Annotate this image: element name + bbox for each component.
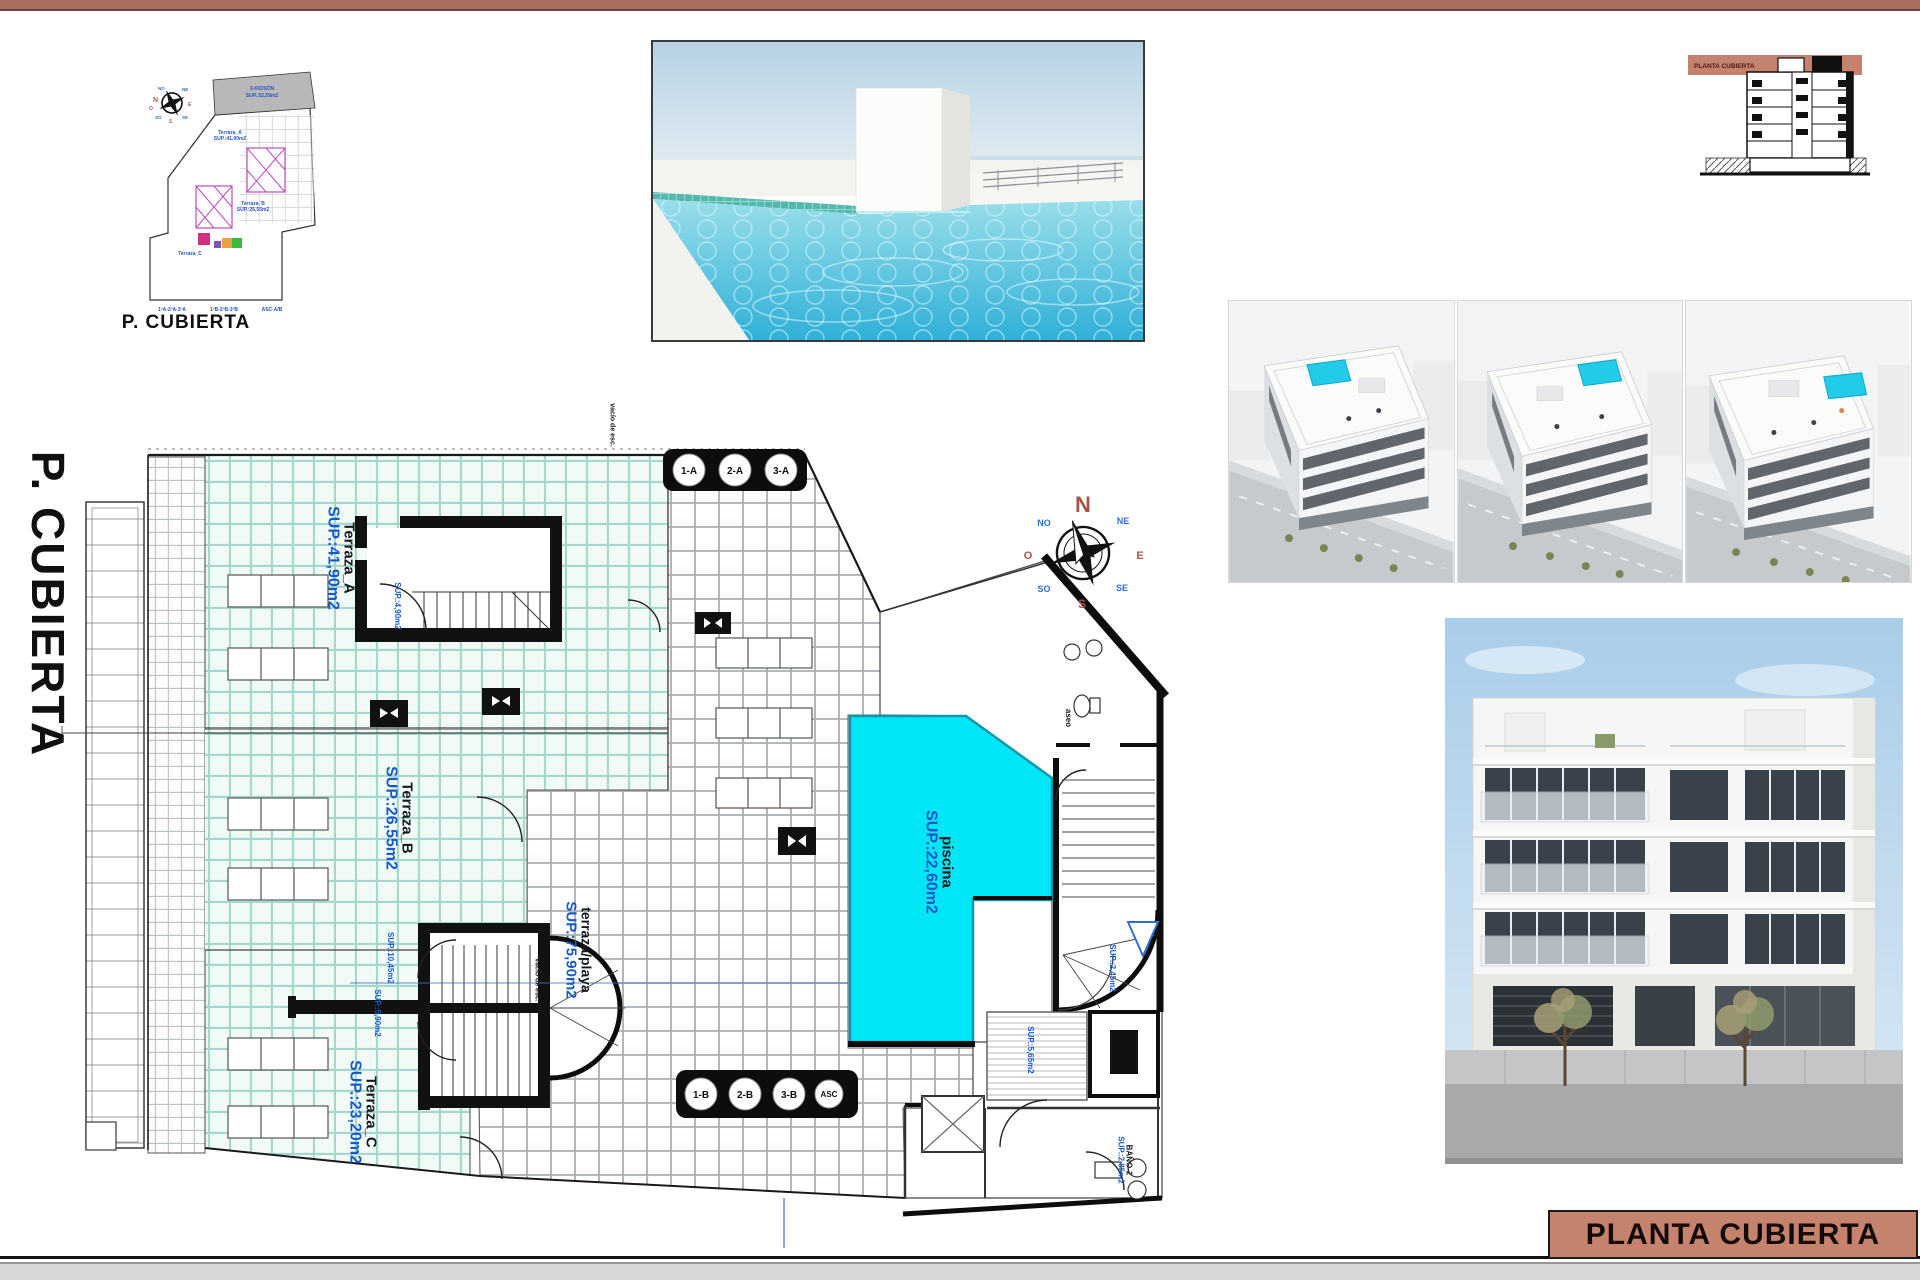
terraza-b-area bbox=[205, 730, 668, 790]
stair-right-area-label: SUP.:2,45m2 bbox=[1108, 944, 1116, 991]
small-area-label: SUP.:10,45m2 bbox=[386, 932, 394, 984]
stair-b1-area-label: SUP.:10,45m2 bbox=[386, 932, 394, 984]
compass-o: O bbox=[1024, 550, 1033, 562]
void-label-2: vacío de esc. bbox=[608, 403, 615, 447]
room-name: piscina bbox=[939, 836, 955, 888]
room-label-terraza-a: Terraza_A SUP.:41,90m2 bbox=[324, 506, 357, 610]
stair-a bbox=[355, 516, 562, 642]
void-text: vacío de esc. bbox=[608, 403, 615, 447]
room-name: BAÑO-2 bbox=[1124, 1145, 1132, 1176]
core-band-b: 1-B 2-B 3-B ASC bbox=[676, 1070, 858, 1118]
svg-text:E: E bbox=[188, 102, 192, 108]
pool-render-image bbox=[651, 40, 1145, 342]
core-a-label: 1-A bbox=[681, 466, 697, 477]
small-area-label: SUP.:2,45m2 bbox=[1108, 944, 1116, 991]
site-label: 3-KIOSÓN bbox=[250, 84, 275, 92]
room-name: Terraza_C bbox=[363, 1076, 379, 1147]
section-drawing: PLANTA CUBIERTA bbox=[1688, 55, 1870, 174]
room-label-piscina: piscina SUP.:22,60m2 bbox=[922, 810, 955, 914]
room-name: terraza/playa bbox=[579, 907, 594, 993]
room-area: SUP.:75,90m2 bbox=[563, 901, 579, 998]
machine-room bbox=[987, 1012, 1087, 1100]
core-b-label: 3-B bbox=[781, 1090, 797, 1101]
room-label-terraza-playa: terraza/playa SUP.:75,90m2 bbox=[563, 901, 594, 998]
aseo-label: aseo bbox=[1064, 709, 1072, 727]
bottom-gray-strip bbox=[0, 1262, 1920, 1280]
site-plan-caption: P. CUBIERTA bbox=[122, 312, 251, 334]
svg-text:NE: NE bbox=[182, 87, 188, 92]
site-label: SUP.:26,55m2 bbox=[237, 207, 270, 213]
compass-ne: NE bbox=[1117, 516, 1130, 526]
roof-floor-plan: 1-A 2-A 3-A 1-B 2-B 3-B ASC bbox=[62, 449, 1166, 1248]
aerial-renders bbox=[1228, 300, 1912, 583]
room-label-terraza-c: Terraza_C SUP.:23,20m2 bbox=[346, 1060, 379, 1164]
stair-b2-area-label: SUP.:5,90m2 bbox=[373, 989, 381, 1036]
room-name: Terraza_A bbox=[341, 522, 357, 593]
pool-render-art bbox=[653, 42, 1143, 340]
drawing-sheet-page: N NO NE E SE S SO O 3-KIOSÓN SUP.:52,59m… bbox=[0, 0, 1920, 1280]
room-area: SUP.:22,60m2 bbox=[922, 810, 939, 914]
site-label: SUP.:41,90m2 bbox=[214, 136, 247, 142]
left-balcony-strip bbox=[86, 502, 144, 1148]
elevator-machine bbox=[1110, 1030, 1138, 1074]
small-area-label: SUP.:5,90m2 bbox=[373, 989, 381, 1036]
facade-render-image bbox=[1445, 618, 1903, 1164]
aerial-render-3 bbox=[1685, 300, 1912, 583]
sheet-side-title: P. CUBIERTA bbox=[21, 451, 75, 758]
site-north-compass-icon: N NO NE E SE S SO O bbox=[149, 84, 192, 125]
site-label: ASC-A/B bbox=[262, 307, 283, 313]
side-walkway bbox=[148, 457, 205, 1153]
aerial-render-2 bbox=[1457, 300, 1684, 583]
void-text: vacío de esc. bbox=[533, 958, 540, 1002]
room-area: SUP.:23,20m2 bbox=[346, 1060, 363, 1164]
room-area: SUP.:2,85m2 bbox=[1116, 1136, 1124, 1183]
core-b-label: 2-B bbox=[737, 1090, 753, 1101]
svg-text:NO: NO bbox=[158, 86, 165, 91]
compass-s: S bbox=[1078, 597, 1086, 611]
svg-text:N: N bbox=[153, 97, 158, 104]
core-b-label: 1-B bbox=[693, 1090, 709, 1101]
aerial-render-1 bbox=[1228, 300, 1455, 583]
compass-e: E bbox=[1136, 550, 1143, 562]
compass-n: N bbox=[1075, 492, 1091, 517]
site-label: Terraza_C bbox=[178, 251, 202, 257]
compass-se: SE bbox=[1116, 583, 1128, 593]
core-a-label: 2-A bbox=[727, 466, 743, 477]
room-area: SUP.:26,55m2 bbox=[382, 766, 399, 870]
room-area: SUP.:41,90m2 bbox=[324, 506, 341, 610]
core-b-label: ASC bbox=[821, 1090, 838, 1099]
machine-room-area-label: SUP.:5,65m2 bbox=[1026, 1026, 1034, 1073]
core-band-a: 1-A 2-A 3-A bbox=[663, 449, 807, 491]
void-label-1: vacío de esc. bbox=[533, 958, 540, 1002]
small-area-label: SUP.:4,90m2 bbox=[393, 582, 401, 629]
north-compass: N NO NE O E SO SE S bbox=[1024, 492, 1144, 611]
room-label-terraza-b: Terraza_B SUP.:26,55m2 bbox=[382, 766, 415, 870]
svg-text:O: O bbox=[149, 106, 153, 112]
facade-render-art bbox=[1445, 618, 1903, 1164]
svg-text:SE: SE bbox=[182, 115, 188, 120]
svg-text:S: S bbox=[169, 119, 173, 125]
small-area-label: SUP.:5,65m2 bbox=[1026, 1026, 1034, 1073]
bano2-label: BAÑO-2 SUP.:2,85m2 bbox=[1116, 1136, 1133, 1183]
section-band-label: PLANTA CUBIERTA bbox=[1694, 63, 1755, 70]
site-plan: N NO NE E SE S SO O 3-KIOSÓN SUP.:52,59m… bbox=[149, 72, 315, 313]
room-name: aseo bbox=[1064, 709, 1072, 727]
compass-no: NO bbox=[1037, 518, 1051, 528]
svg-text:SO: SO bbox=[155, 115, 162, 120]
room-name: Terraza_B bbox=[399, 782, 415, 853]
sheet-title-box: PLANTA CUBIERTA bbox=[1548, 1210, 1918, 1259]
site-label: SUP.:52,59m2 bbox=[246, 93, 279, 99]
stair-a-area-label: SUP.:4,90m2 bbox=[393, 582, 401, 629]
sheet-title: PLANTA CUBIERTA bbox=[1586, 1218, 1880, 1252]
compass-so: SO bbox=[1037, 584, 1050, 594]
core-a-label: 3-A bbox=[773, 466, 789, 477]
